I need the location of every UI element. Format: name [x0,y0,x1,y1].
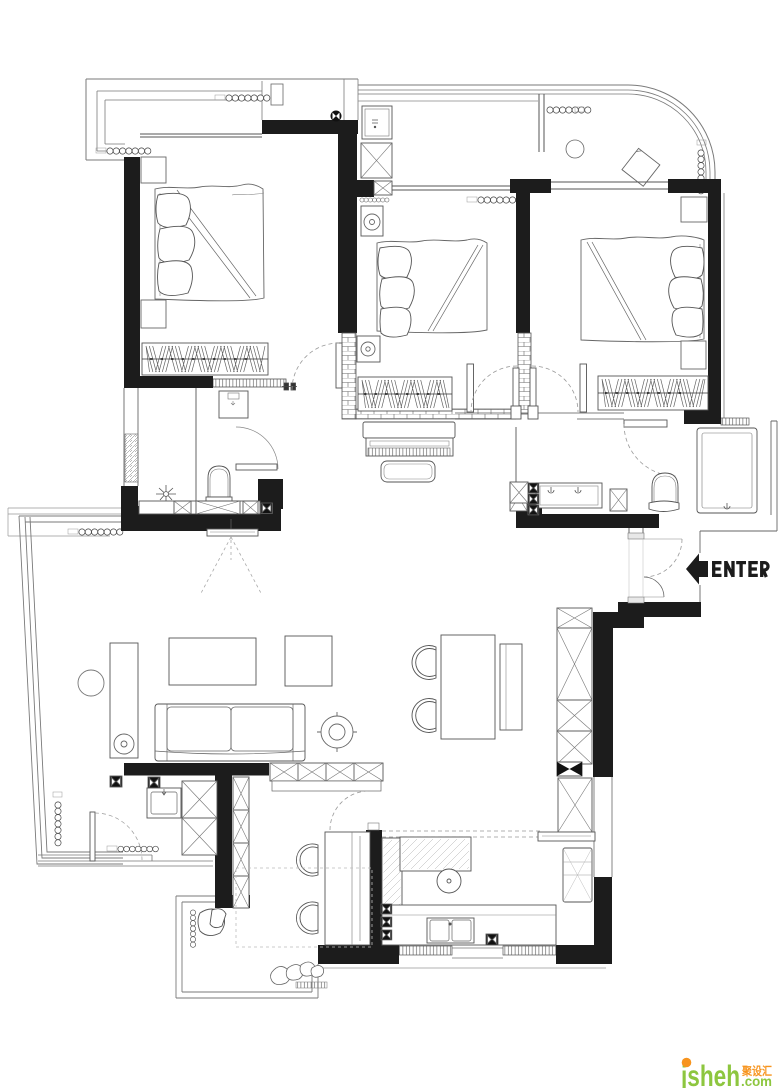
svg-text:.com: .com [741,1074,772,1088]
